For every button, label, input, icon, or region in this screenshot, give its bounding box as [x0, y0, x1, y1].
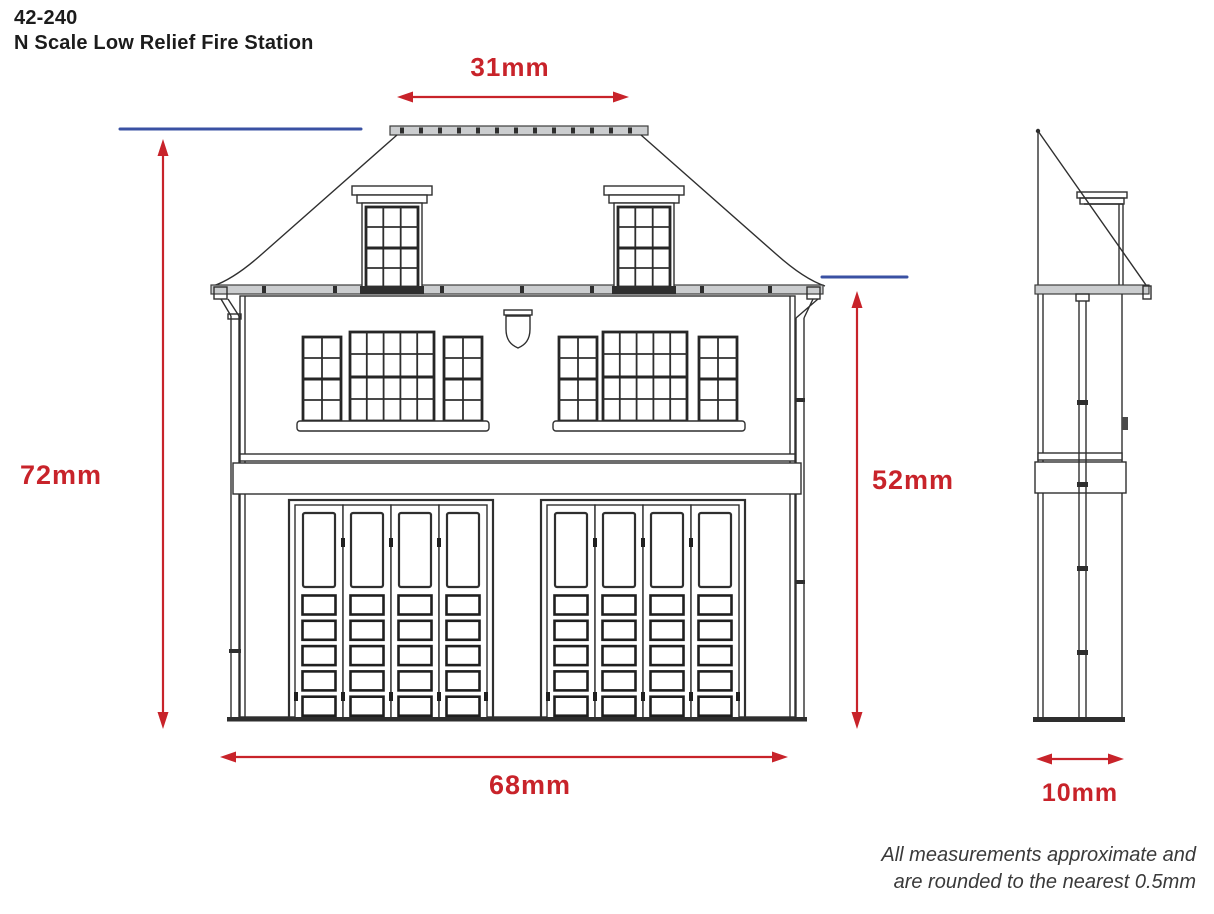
dim-arrow-overall-height	[158, 139, 169, 729]
upper-windows-left	[297, 332, 489, 431]
side-dormer-profile	[1077, 192, 1127, 285]
front-base-line	[227, 717, 807, 722]
dim-arrow-ridge-width	[397, 92, 629, 103]
front-elevation	[211, 126, 825, 722]
dim-arrow-eaves-height	[852, 291, 863, 729]
side-gutter	[1035, 285, 1151, 299]
fascia-band	[233, 454, 801, 494]
right-dormer	[604, 186, 684, 294]
side-elevation	[1033, 129, 1151, 722]
garage-doors-right	[541, 500, 745, 718]
technical-drawing	[0, 0, 1214, 914]
left-dormer	[352, 186, 432, 294]
dim-arrow-overall-width	[220, 752, 788, 763]
side-sign-bracket	[1122, 417, 1128, 430]
garage-doors-left	[289, 500, 493, 718]
side-roof-slope	[1038, 131, 1146, 285]
side-drainpipe	[1076, 294, 1089, 717]
side-base-line	[1033, 717, 1125, 722]
front-roof	[213, 126, 825, 286]
upper-windows-right	[553, 332, 745, 431]
dim-arrow-depth	[1036, 754, 1124, 765]
drawing-sheet: 42-240 N Scale Low Relief Fire Station 3…	[0, 0, 1214, 914]
